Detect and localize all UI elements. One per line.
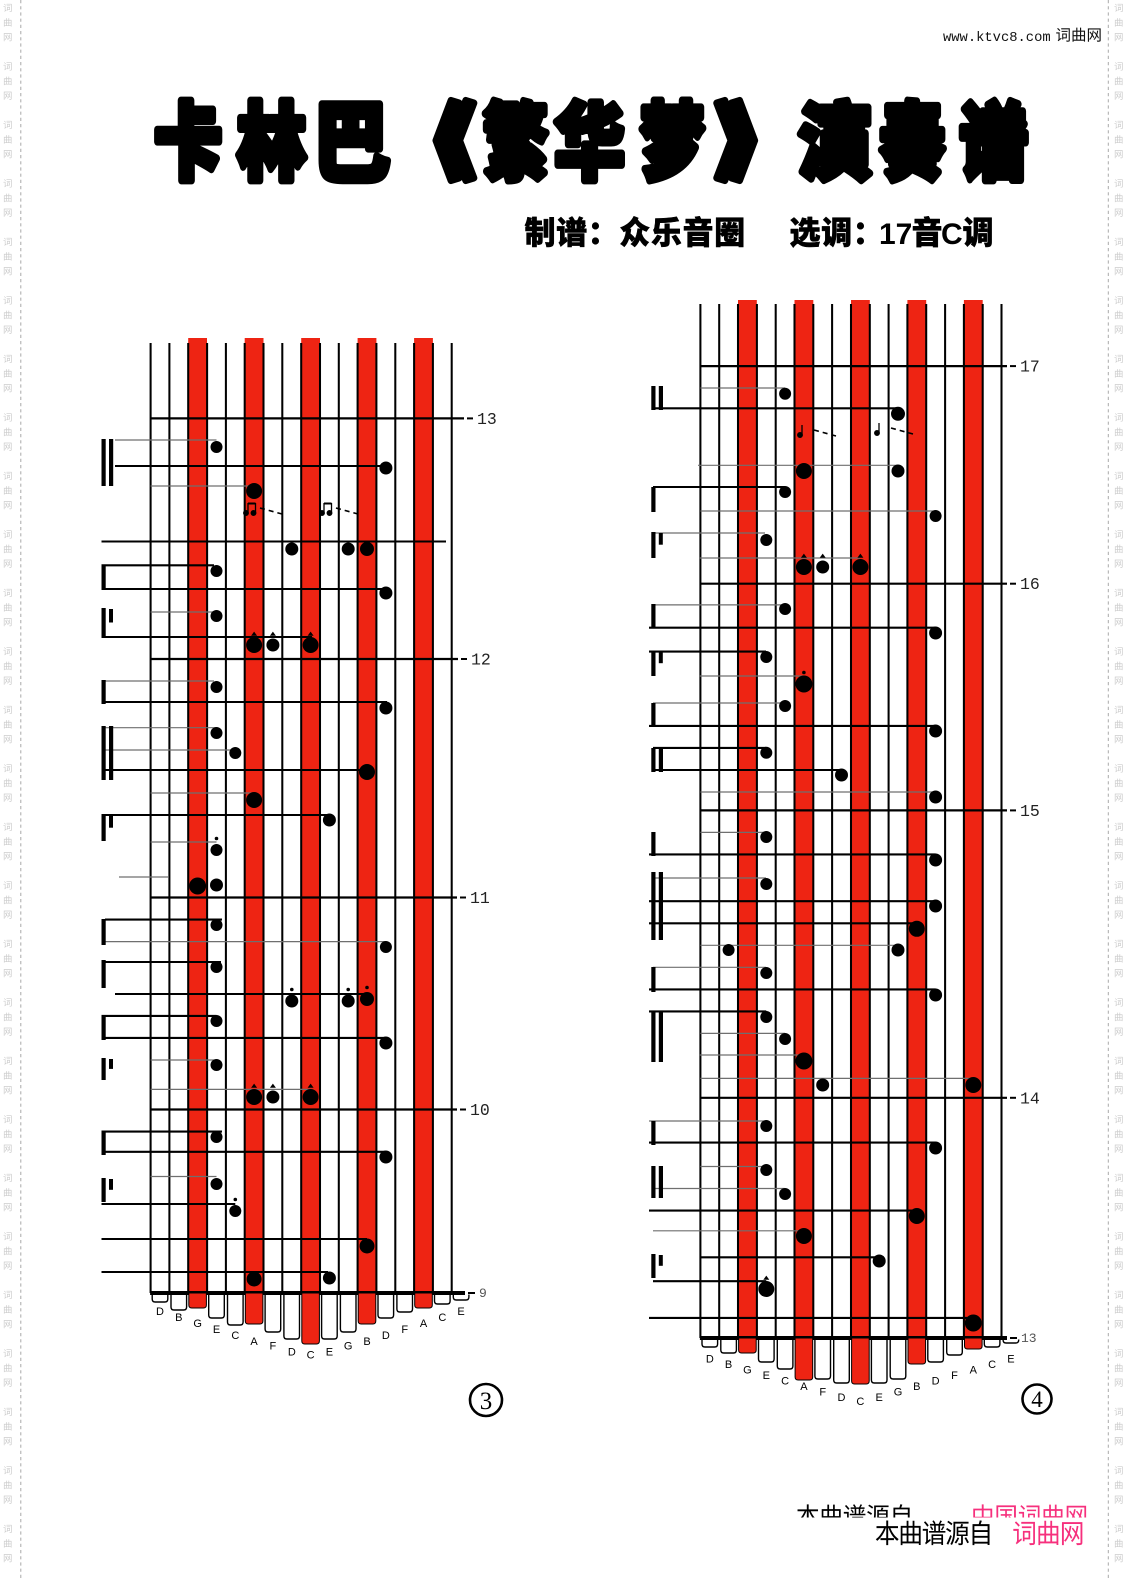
svg-text:C: C [856, 1396, 864, 1408]
svg-text:C: C [307, 1350, 315, 1362]
svg-text:15: 15 [1020, 802, 1040, 821]
svg-text:G: G [344, 1341, 353, 1353]
svg-text:E: E [1007, 1353, 1014, 1365]
svg-text:A: A [250, 1336, 258, 1348]
svg-text:F: F [951, 1370, 958, 1382]
svg-text:D: D [156, 1306, 164, 1318]
svg-text:E: E [326, 1347, 333, 1359]
svg-text:C: C [231, 1330, 239, 1342]
svg-text:17: 17 [879, 218, 912, 251]
svg-text:13: 13 [1021, 1331, 1037, 1346]
svg-text:D: D [382, 1330, 390, 1342]
svg-text:12: 12 [471, 651, 491, 670]
svg-text:www.ktvc8.com: www.ktvc8.com [943, 30, 1051, 46]
svg-text:13: 13 [477, 410, 497, 429]
svg-text:F: F [401, 1324, 408, 1336]
svg-text:A: A [970, 1364, 978, 1376]
svg-text:D: D [706, 1353, 714, 1365]
svg-text:17: 17 [1020, 358, 1040, 377]
svg-text:F: F [819, 1386, 826, 1398]
svg-text:4: 4 [1031, 1387, 1043, 1412]
svg-text:E: E [457, 1306, 464, 1318]
svg-text:C: C [988, 1359, 996, 1371]
svg-text:E: E [763, 1370, 770, 1382]
svg-text:3: 3 [480, 1388, 493, 1415]
svg-text:G: G [193, 1318, 202, 1330]
svg-text:D: D [932, 1375, 940, 1387]
svg-text:E: E [213, 1324, 220, 1336]
svg-text:9: 9 [479, 1286, 487, 1301]
svg-text:A: A [800, 1381, 808, 1393]
svg-text:D: D [838, 1392, 846, 1404]
svg-text:B: B [363, 1336, 370, 1348]
svg-text:C: C [438, 1312, 446, 1324]
svg-text:F: F [270, 1341, 277, 1353]
svg-text:10: 10 [470, 1101, 490, 1120]
svg-text:B: B [913, 1381, 920, 1393]
svg-text:B: B [175, 1312, 182, 1324]
svg-text:E: E [876, 1392, 883, 1404]
svg-text:11: 11 [470, 889, 490, 908]
svg-text:14: 14 [1020, 1089, 1040, 1108]
svg-text:16: 16 [1020, 575, 1040, 594]
svg-text:C: C [781, 1375, 789, 1387]
svg-text:G: G [743, 1364, 752, 1376]
svg-text:D: D [288, 1347, 296, 1359]
svg-text:C: C [941, 218, 963, 251]
svg-text:A: A [420, 1318, 428, 1330]
svg-text:B: B [725, 1359, 732, 1371]
svg-text:G: G [894, 1386, 903, 1398]
